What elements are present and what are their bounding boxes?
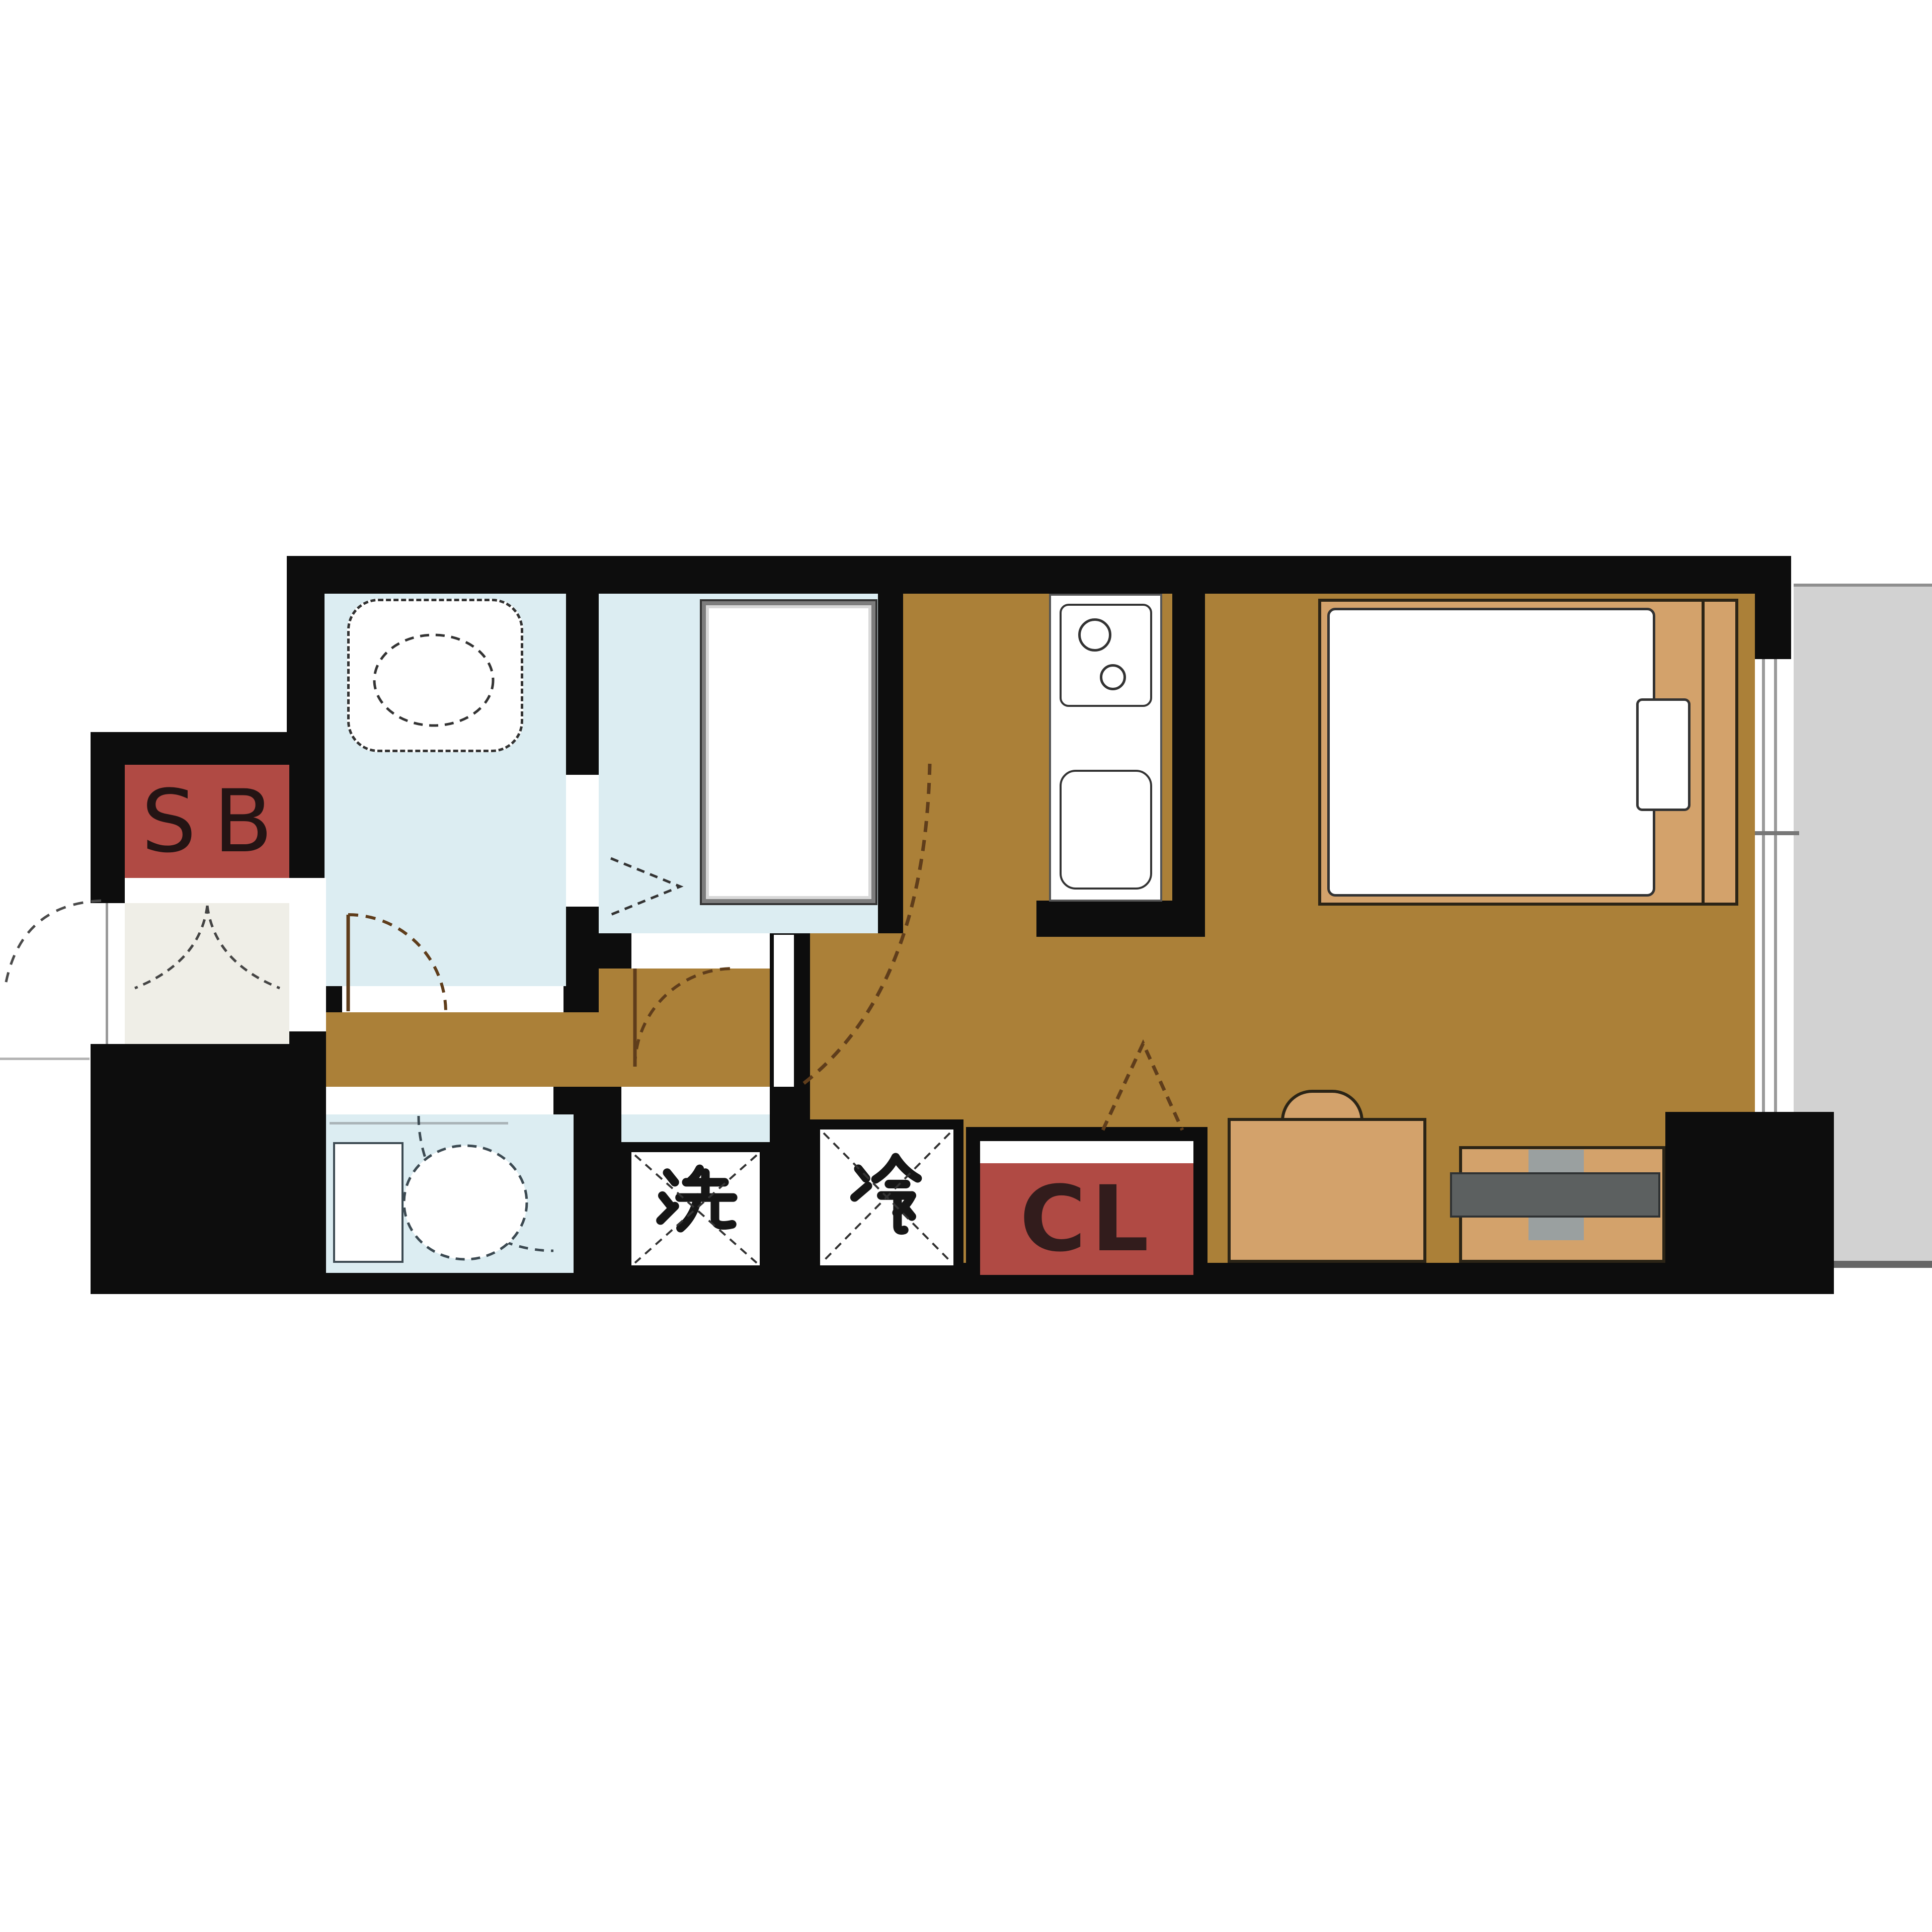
bed-mattress <box>1327 608 1655 897</box>
window-glass-line-outer <box>1762 659 1765 1127</box>
bathroom-door-threshold <box>342 986 563 1013</box>
toilet-wall-line <box>330 1122 508 1124</box>
window-glass-line-inner <box>1774 659 1777 1127</box>
toilet-tank <box>333 1142 404 1263</box>
entrance-door-arc <box>6 901 103 982</box>
entrance-floor <box>125 903 289 1044</box>
closet: CL <box>980 1163 1193 1275</box>
entrance-doorway-line <box>106 903 108 1044</box>
shoe-box: SB <box>125 765 289 878</box>
desk <box>1228 1118 1426 1263</box>
washer-nook-gap <box>621 1087 770 1114</box>
shoe-box-label: SB <box>124 771 290 872</box>
kitchen-sink <box>1060 770 1152 890</box>
bed-headboard-divider <box>1702 602 1705 903</box>
bath-wash-wall-gap <box>566 775 599 907</box>
kitchen-stove <box>1060 604 1152 707</box>
tv-icon <box>1450 1172 1660 1218</box>
closet-label: CL <box>1020 1167 1154 1272</box>
bathtub <box>347 599 523 752</box>
toilet-door-gap <box>326 1087 553 1114</box>
hall-mainroom-door-gap <box>774 935 794 1087</box>
bed-pillow <box>1636 698 1691 811</box>
hallway-upper <box>599 969 770 1012</box>
closet-threshold <box>980 1141 1193 1163</box>
corridor-line <box>0 1058 90 1060</box>
stove-burner-small-icon <box>1100 664 1126 690</box>
window-opening <box>1755 659 1791 1127</box>
floor-plan-canvas: SB CL <box>0 0 1932 1932</box>
washing-machine-kanji-icon <box>648 1161 744 1257</box>
washroom-door-threshold <box>631 933 770 969</box>
hallway <box>326 1012 770 1087</box>
stove-burner-large-icon <box>1078 618 1111 652</box>
refrigerator-kanji-icon <box>839 1150 935 1245</box>
kitchen-wall-bar <box>1172 594 1205 937</box>
entrance-hall-passage <box>289 878 326 1031</box>
washer-nook-strip <box>621 1114 770 1142</box>
shower-unit <box>702 601 875 903</box>
kitchen-wall-stub <box>1036 901 1205 937</box>
refrigerator-space <box>810 1119 963 1275</box>
shoe-box-threshold <box>125 878 289 903</box>
washing-machine-space <box>621 1142 770 1275</box>
wall-bottom-right-block <box>1665 1112 1834 1294</box>
